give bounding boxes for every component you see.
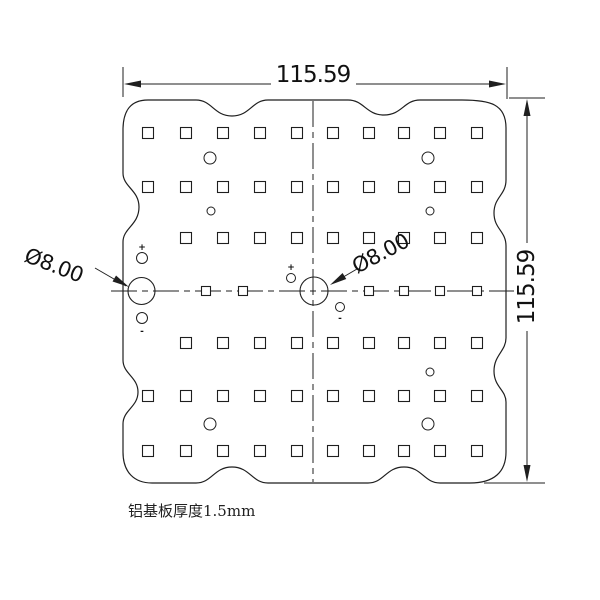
pad-square: [255, 128, 266, 139]
pad-square: [399, 182, 410, 193]
pad-square: [255, 446, 266, 457]
pad-square: [399, 446, 410, 457]
pad-square: [472, 182, 483, 193]
dim-width-value: 115.59: [276, 62, 351, 88]
pad-square: [364, 391, 375, 402]
pad-square: [435, 128, 446, 139]
pad-square: [435, 233, 446, 244]
pad-square: [364, 446, 375, 457]
pad-square: [143, 446, 154, 457]
pcb-technical-drawing: ++-- 115.59 115.59 Ø8.00: [0, 0, 600, 600]
pad-square: [364, 128, 375, 139]
dim-height-value: 115.59: [514, 249, 540, 324]
pad-square: [181, 182, 192, 193]
polarity-mark: +: [138, 243, 146, 253]
pad-square: [143, 182, 154, 193]
pad-square-centerline: [365, 287, 374, 296]
pad-square: [218, 128, 229, 139]
note-thickness: 铝基板厚度1.5mm: [128, 502, 255, 520]
polarity-mark: +: [287, 263, 295, 273]
pad-square: [255, 391, 266, 402]
pad-square: [292, 233, 303, 244]
pad-square: [181, 391, 192, 402]
pad-square: [181, 446, 192, 457]
pad-square: [181, 233, 192, 244]
small-hole: [137, 313, 148, 324]
pad-square-centerline: [473, 287, 482, 296]
hole-callout-left-text: Ø8.00: [21, 243, 86, 287]
pad-square: [255, 338, 266, 349]
pad-square: [181, 128, 192, 139]
small-hole: [426, 207, 434, 215]
hole-callout-right-text: Ø8.00: [348, 229, 413, 279]
pad-square: [218, 233, 229, 244]
pad-square-centerline: [239, 287, 248, 296]
pad-square-centerline: [202, 287, 211, 296]
pad-square: [364, 338, 375, 349]
small-hole: [287, 274, 296, 283]
leader-arrow-right: [328, 273, 346, 288]
pad-square: [328, 233, 339, 244]
pad-square: [328, 338, 339, 349]
pad-square: [218, 391, 229, 402]
small-hole: [422, 418, 434, 430]
dim-arrow-up: [524, 99, 531, 116]
dim-arrow-left: [124, 81, 141, 88]
pad-square: [328, 182, 339, 193]
pad-square: [435, 391, 446, 402]
pad-square: [328, 446, 339, 457]
small-hole: [426, 368, 434, 376]
pad-square: [399, 128, 410, 139]
small-hole: [207, 207, 215, 215]
pad-square: [292, 446, 303, 457]
polarity-mark: -: [338, 314, 342, 324]
cad-drawing-canvas: ++-- 115.59 115.59 Ø8.00: [0, 0, 600, 600]
pad-square: [472, 446, 483, 457]
pad-square: [328, 391, 339, 402]
dim-arrow-down: [524, 465, 531, 482]
pad-square: [472, 128, 483, 139]
dim-arrow-right: [489, 81, 506, 88]
dim-width: 115.59: [123, 62, 507, 99]
pad-square: [143, 128, 154, 139]
small-hole: [204, 152, 216, 164]
pad-square: [143, 391, 154, 402]
pad-square-centerline: [436, 287, 445, 296]
pad-square: [255, 182, 266, 193]
pad-square: [364, 182, 375, 193]
pad-square: [399, 338, 410, 349]
centerlines: [111, 101, 514, 482]
pad-square: [472, 338, 483, 349]
pad-square: [292, 182, 303, 193]
small-hole: [336, 303, 345, 312]
small-hole: [137, 253, 148, 264]
pad-square: [292, 391, 303, 402]
pad-square: [399, 391, 410, 402]
pad-square-centerline: [400, 287, 409, 296]
pad-square: [328, 128, 339, 139]
hole-callout-left: Ø8.00: [21, 243, 131, 290]
small-hole: [422, 152, 434, 164]
pad-square: [364, 233, 375, 244]
small-hole: [204, 418, 216, 430]
pad-square: [435, 338, 446, 349]
pad-square: [218, 182, 229, 193]
pad-square: [435, 182, 446, 193]
pad-square: [472, 233, 483, 244]
pad-square: [472, 391, 483, 402]
pad-square: [255, 233, 266, 244]
polarity-mark: -: [140, 327, 144, 337]
pad-square: [218, 338, 229, 349]
pad-square: [292, 338, 303, 349]
pad-square: [435, 446, 446, 457]
pad-square: [218, 446, 229, 457]
pad-square: [181, 338, 192, 349]
pad-square: [292, 128, 303, 139]
